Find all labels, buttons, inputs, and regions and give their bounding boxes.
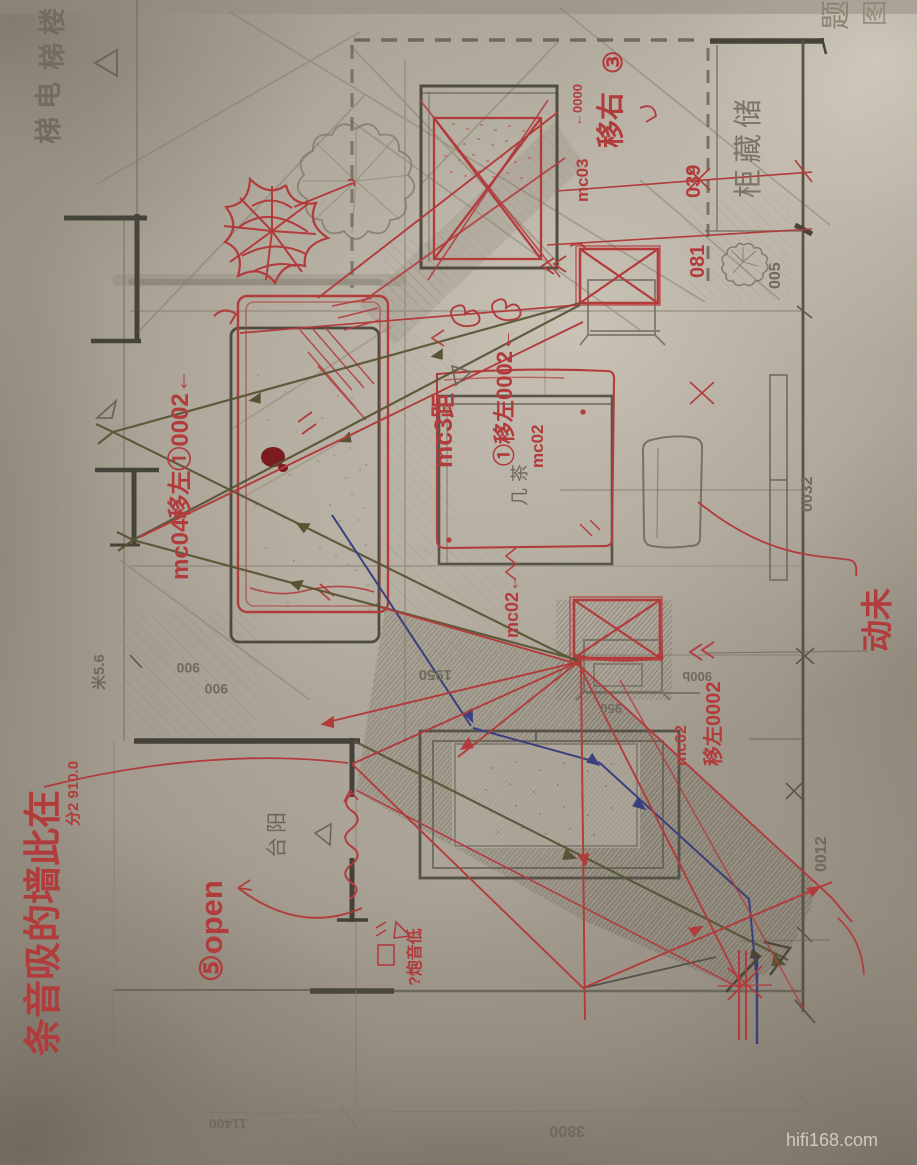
svg-text:柜藏储: 柜藏储: [732, 93, 765, 198]
svg-text:米5.6: 米5.6: [90, 654, 108, 690]
svg-text:③: ③: [598, 51, 628, 74]
svg-text:←0000: ←0000: [570, 84, 585, 126]
svg-text:梯电: 梯电: [34, 74, 64, 144]
svg-text:900: 900: [176, 660, 200, 676]
svg-text:0032: 0032: [799, 476, 816, 512]
svg-text:039: 039: [683, 165, 705, 198]
svg-text:900: 900: [204, 681, 228, 697]
svg-text:题: 题: [820, 0, 853, 30]
svg-text:mc02: mc02: [673, 725, 690, 766]
svg-text:台阳: 台阳: [266, 808, 289, 858]
svg-text:11400: 11400: [209, 1116, 247, 1132]
svg-text:动未: 动未: [859, 588, 895, 652]
svg-text:mc04移左①0002←: mc04移左①0002←: [166, 369, 194, 580]
svg-text:hifi168.com: hifi168.com: [786, 1130, 878, 1150]
svg-text:mc03: mc03: [573, 159, 592, 202]
svg-text:移右: 移右: [595, 92, 626, 148]
svg-text:0012: 0012: [813, 836, 830, 872]
svg-text:950: 950: [600, 701, 622, 716]
svg-text:①移左0002←: ①移左0002←: [492, 329, 517, 466]
svg-text:1950: 1950: [419, 666, 452, 683]
svg-text:图: 图: [860, 0, 890, 26]
svg-text:081: 081: [687, 245, 709, 278]
svg-text:移左0002: 移左0002: [701, 682, 725, 767]
svg-text:梯楼: 梯楼: [38, 0, 68, 70]
svg-text:⑤open: ⑤open: [194, 880, 229, 982]
svg-text:?炮音低: ?炮音低: [405, 928, 424, 986]
svg-text:mc02←: mc02←: [502, 574, 522, 638]
svg-text:mc3距: mc3距: [430, 393, 458, 468]
svg-text:条音吸的墙此在: 条音吸的墙此在: [23, 790, 65, 1056]
svg-text:分2 910.0: 分2 910.0: [65, 761, 82, 826]
svg-text:3800: 3800: [549, 1122, 585, 1139]
svg-text:005: 005: [767, 262, 784, 289]
svg-text:mc02: mc02: [528, 425, 547, 468]
